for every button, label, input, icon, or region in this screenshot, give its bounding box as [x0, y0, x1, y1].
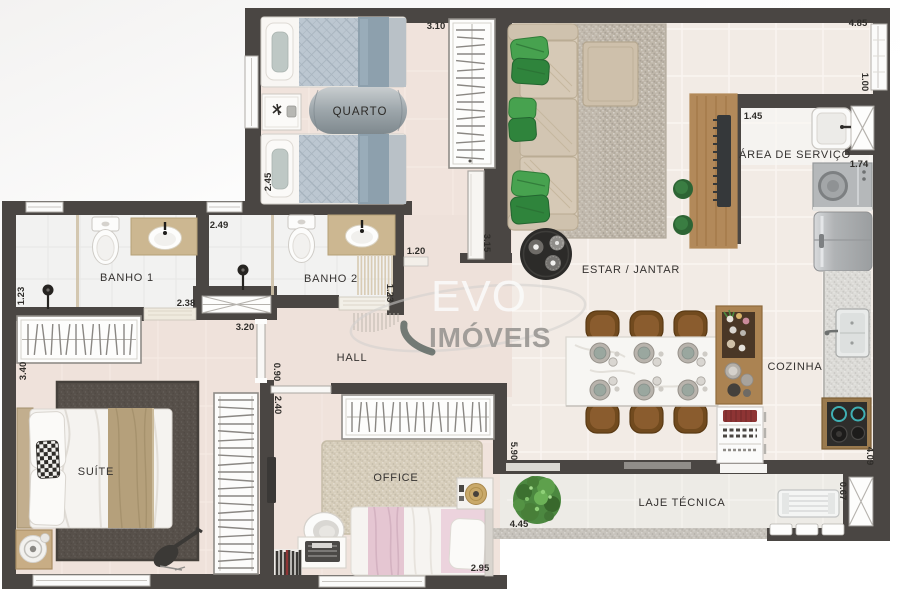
svg-text:4.09: 4.09: [864, 447, 875, 466]
svg-text:1.20: 1.20: [407, 246, 426, 257]
svg-text:4.85: 4.85: [849, 18, 868, 29]
svg-text:2.95: 2.95: [471, 563, 490, 574]
svg-text:COZINHA: COZINHA: [767, 361, 822, 373]
svg-text:1.45: 1.45: [744, 111, 763, 122]
svg-text:1.00: 1.00: [859, 73, 870, 92]
svg-text:ESTAR / JANTAR: ESTAR / JANTAR: [582, 264, 680, 276]
svg-text:2.45: 2.45: [263, 172, 274, 191]
svg-text:1.23: 1.23: [384, 284, 395, 303]
svg-text:QUARTO: QUARTO: [333, 106, 388, 118]
svg-text:BANHO 2: BANHO 2: [304, 273, 358, 285]
svg-text:OFFICE: OFFICE: [373, 472, 418, 484]
svg-text:3.15: 3.15: [481, 234, 492, 253]
svg-text:4.45: 4.45: [510, 519, 529, 530]
svg-text:BANHO 1: BANHO 1: [100, 272, 154, 284]
svg-text:5.90: 5.90: [508, 442, 519, 461]
svg-text:2.40: 2.40: [272, 396, 283, 415]
svg-text:EVO: EVO: [431, 272, 527, 321]
svg-text:1.74: 1.74: [850, 159, 869, 170]
svg-text:IMÓVEIS: IMÓVEIS: [429, 322, 551, 353]
svg-text:3.20: 3.20: [236, 322, 255, 333]
svg-text:1.23: 1.23: [16, 287, 27, 306]
svg-text:LAJE TÉCNICA: LAJE TÉCNICA: [638, 496, 725, 509]
svg-text:0.90: 0.90: [271, 363, 282, 382]
svg-text:2.38: 2.38: [177, 298, 196, 309]
svg-text:HALL: HALL: [337, 352, 368, 364]
svg-text:ÁREA DE SERVIÇO: ÁREA DE SERVIÇO: [739, 148, 851, 161]
svg-text:SUÍTE: SUÍTE: [78, 465, 114, 478]
svg-text:2.49: 2.49: [210, 220, 229, 231]
svg-text:0.67: 0.67: [837, 482, 848, 501]
svg-text:3.40: 3.40: [18, 362, 29, 381]
svg-text:3.10: 3.10: [427, 21, 446, 32]
